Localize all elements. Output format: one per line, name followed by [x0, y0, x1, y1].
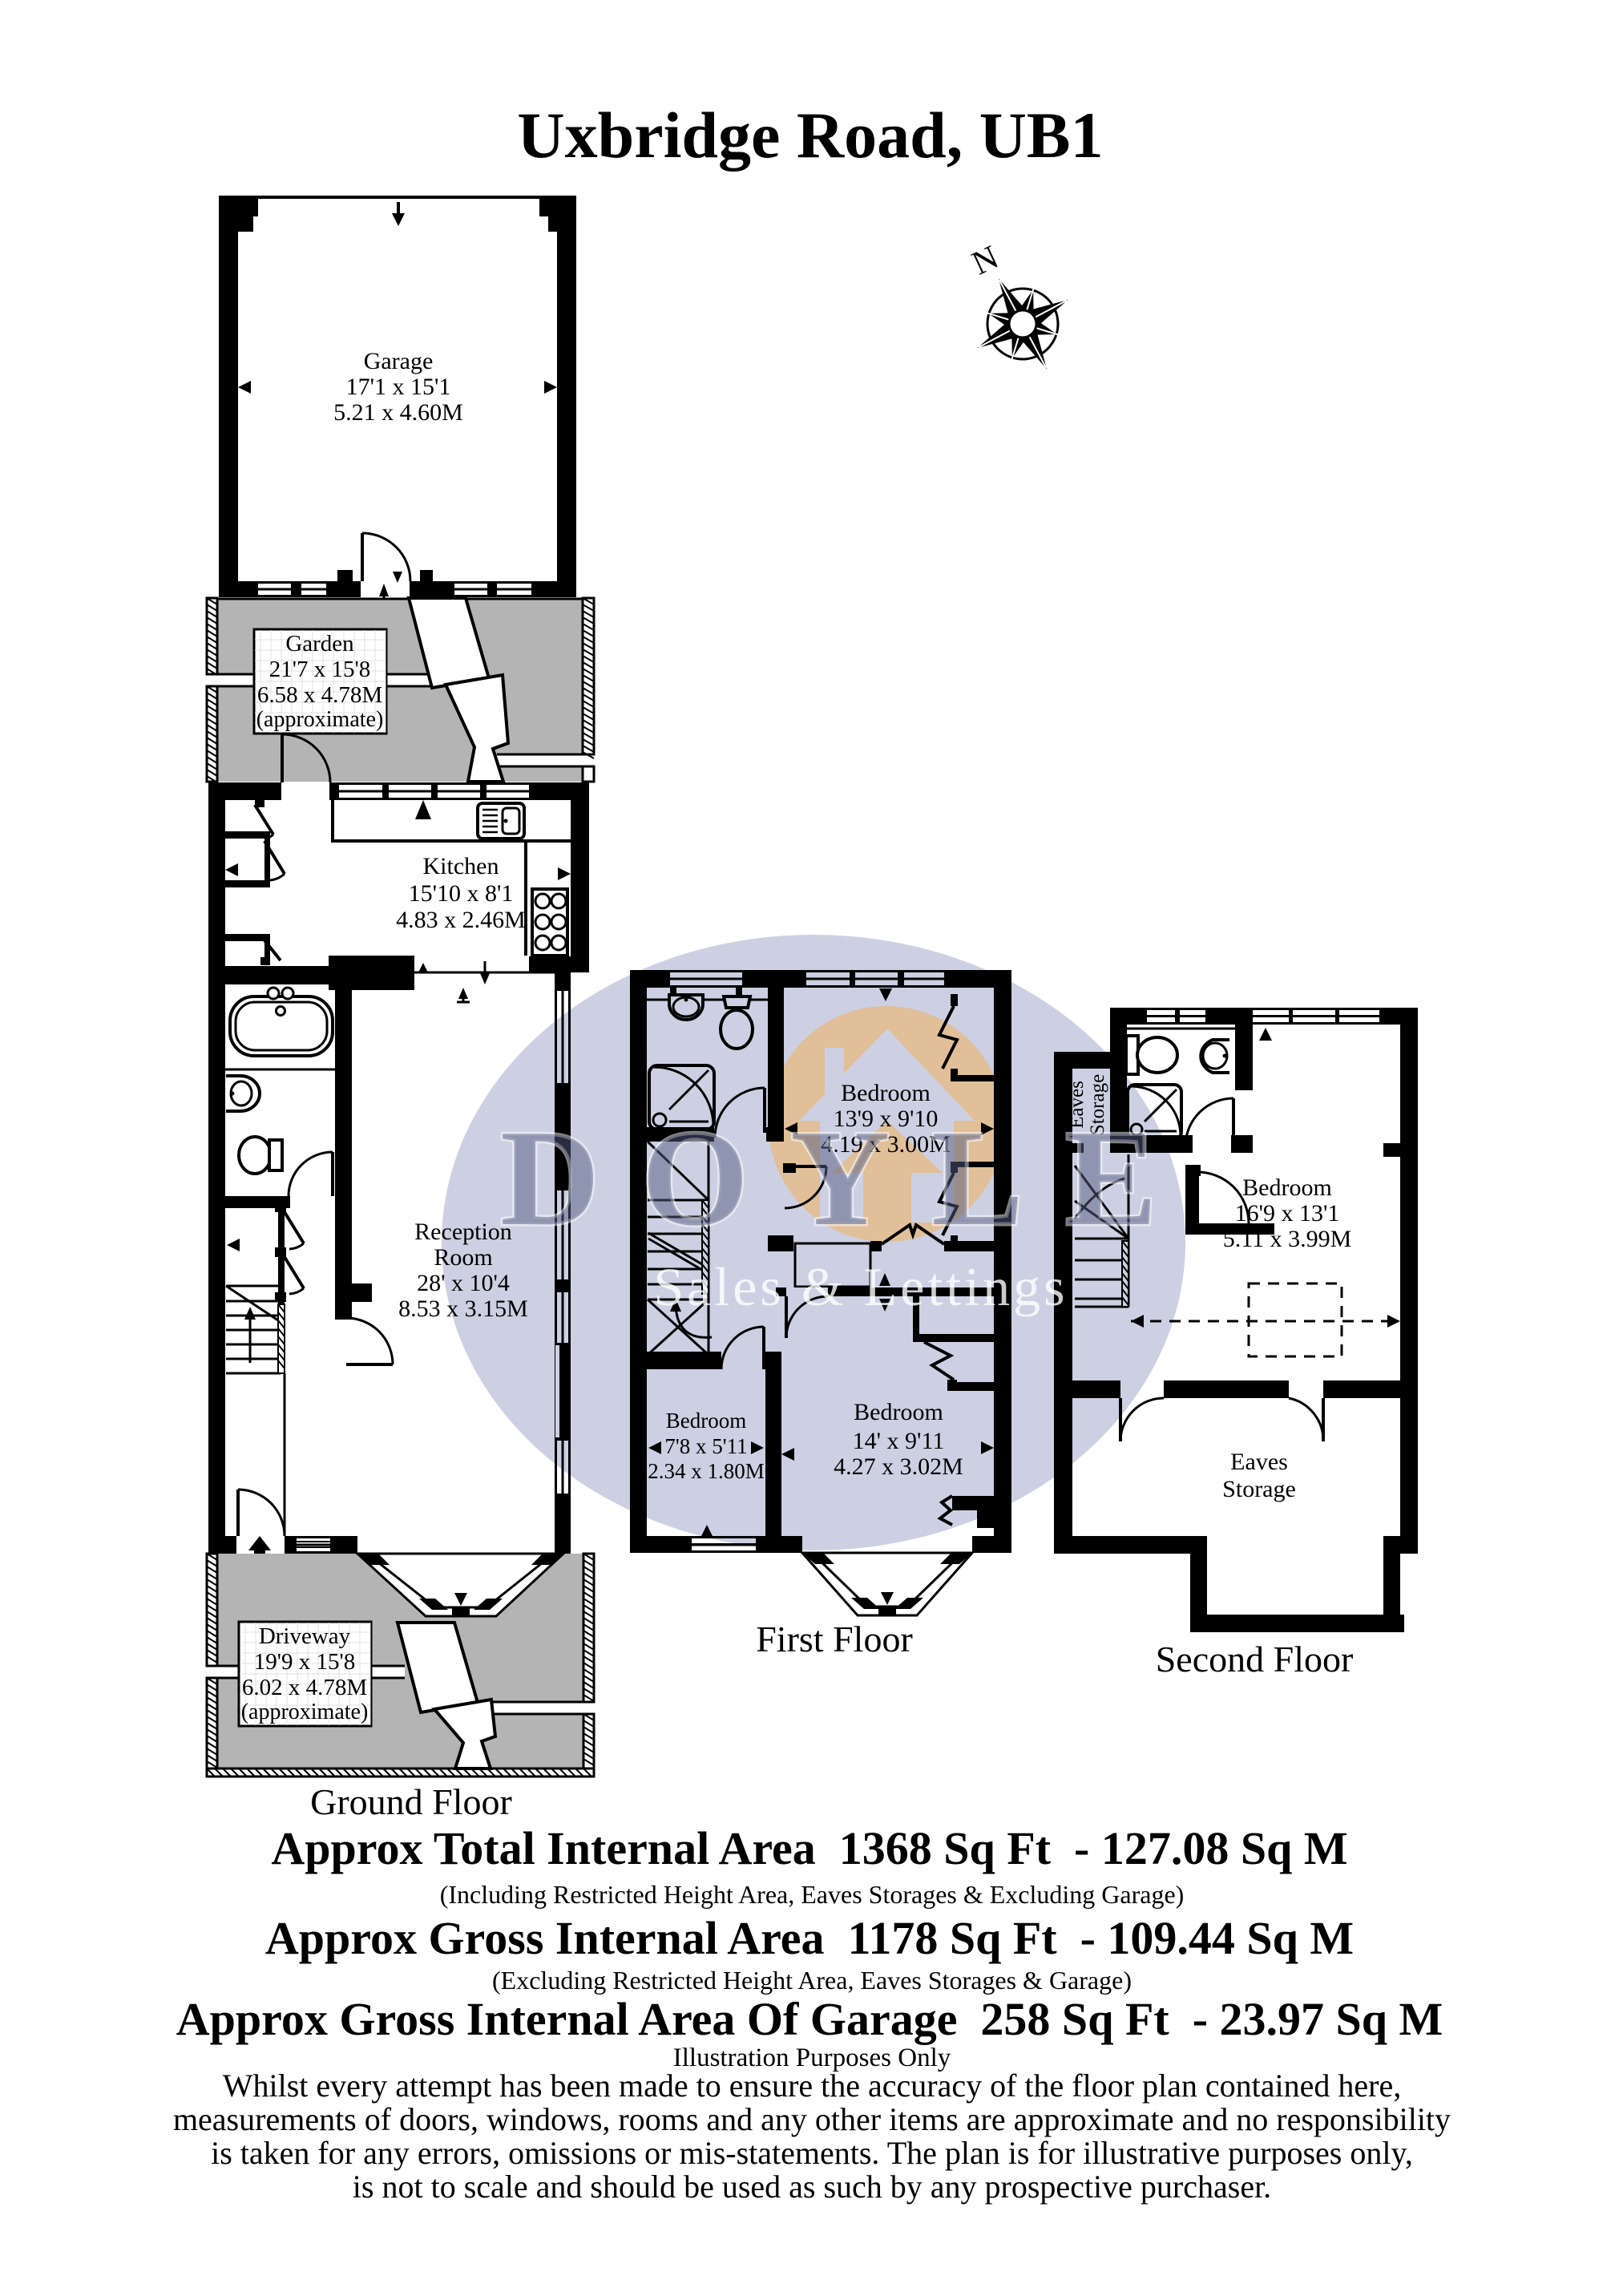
svg-text:(approximate): (approximate)	[241, 1700, 369, 1724]
svg-text:is taken for any errors, omiss: is taken for any errors, omissions or mi…	[211, 2135, 1413, 2171]
svg-text:Bedroom: Bedroom	[666, 1409, 747, 1433]
svg-text:6.02 x 4.78M: 6.02 x 4.78M	[242, 1675, 367, 1700]
svg-text:2.34 x 1.80M: 2.34 x 1.80M	[648, 1459, 765, 1483]
svg-text:(Excluding Restricted Height A: (Excluding Restricted Height Area, Eaves…	[492, 1966, 1132, 1995]
svg-text:Second Floor: Second Floor	[1156, 1639, 1354, 1680]
svg-text:(Including Restricted Height A: (Including Restricted Height Area, Eaves…	[440, 1880, 1185, 1909]
svg-text:Bedroom: Bedroom	[854, 1399, 943, 1425]
svg-text:(approximate): (approximate)	[256, 707, 384, 732]
svg-text:19'9 x 15'8: 19'9 x 15'8	[254, 1649, 355, 1675]
svg-text:4.27 x 3.02M: 4.27 x 3.02M	[834, 1453, 963, 1480]
svg-text:Eaves: Eaves	[1230, 1449, 1288, 1475]
svg-text:measurements of doors, windows: measurements of doors, windows, rooms an…	[173, 2101, 1451, 2137]
svg-text:First Floor: First Floor	[756, 1619, 913, 1659]
svg-text:Kitchen: Kitchen	[423, 853, 499, 879]
svg-text:Driveway: Driveway	[259, 1623, 351, 1649]
svg-text:Sales & Lettings: Sales & Lettings	[653, 1256, 1068, 1317]
svg-text:Approx Gross Internal Area Of: Approx Gross Internal Area Of Garage 258…	[176, 1993, 1443, 2045]
svg-text:Storage: Storage	[1222, 1476, 1296, 1502]
svg-text:15'10 x 8'1: 15'10 x 8'1	[409, 880, 514, 907]
svg-text:4.83 x 2.46M: 4.83 x 2.46M	[396, 907, 526, 933]
svg-text:is not to scale and should be: is not to scale and should be used as su…	[353, 2169, 1271, 2205]
svg-text:28' x 10'4: 28' x 10'4	[417, 1270, 510, 1296]
svg-text:21'7 x 15'8: 21'7 x 15'8	[269, 657, 370, 682]
svg-text:8.53 x 3.15M: 8.53 x 3.15M	[398, 1296, 528, 1322]
svg-text:6.58 x 4.78M: 6.58 x 4.78M	[257, 682, 382, 708]
svg-text:7'8 x 5'11: 7'8 x 5'11	[664, 1434, 747, 1458]
svg-text:Garden: Garden	[285, 631, 354, 657]
svg-text:14' x 9'11: 14' x 9'11	[853, 1428, 945, 1454]
svg-text:Whilst every attempt has been: Whilst every attempt has been made to en…	[223, 2068, 1402, 2104]
svg-text:Ground Floor: Ground Floor	[310, 1781, 512, 1822]
svg-text:Approx Gross Internal Area 11: Approx Gross Internal Area 1178 Sq Ft - …	[265, 1912, 1354, 1964]
svg-text:DOYLE: DOYLE	[500, 1102, 1199, 1255]
svg-text:5.21 x 4.60M: 5.21 x 4.60M	[333, 399, 463, 426]
svg-text:Approx Total Internal Area 13: Approx Total Internal Area 1368 Sq Ft - …	[271, 1822, 1347, 1874]
svg-text:Bedroom: Bedroom	[1242, 1174, 1332, 1201]
svg-text:Garage: Garage	[364, 348, 434, 374]
svg-text:16'9 x 13'1: 16'9 x 13'1	[1235, 1200, 1340, 1227]
svg-text:17'1 x 15'1: 17'1 x 15'1	[346, 374, 451, 400]
svg-text:Uxbridge Road, UB1: Uxbridge Road, UB1	[517, 99, 1103, 172]
svg-text:Room: Room	[434, 1244, 492, 1271]
svg-text:Reception: Reception	[414, 1219, 512, 1245]
